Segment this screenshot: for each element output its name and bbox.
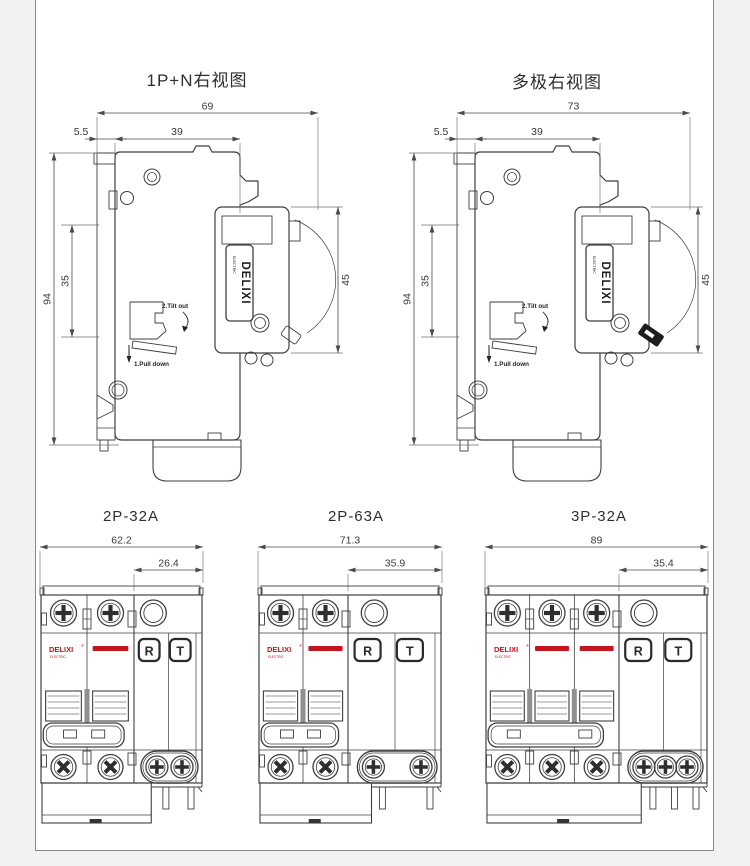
phillips-screw xyxy=(539,600,565,626)
dimension-label: 62.2 xyxy=(111,535,132,547)
terminal-oval xyxy=(141,751,198,783)
side-view-multi-title: 多极右视图 xyxy=(472,68,642,93)
brand-reg-mark: ® xyxy=(299,643,302,648)
rcd-module: DELIXIELECTRIC xyxy=(215,207,336,366)
dimension-label: 45 xyxy=(700,274,709,286)
reset-button-label: R xyxy=(634,645,643,659)
phillips-screw xyxy=(268,600,294,626)
front-view-2p63-title: 2P-63A xyxy=(271,508,441,525)
front-view-2p32-drawing: 62.226.4DELIXI®ELECTRICRT xyxy=(32,535,212,833)
test-port xyxy=(140,600,166,626)
tilt-out-annotation: 2.Tilt out xyxy=(522,303,549,310)
brand-reg-mark: ® xyxy=(81,643,84,648)
dimension-label: 35.4 xyxy=(653,558,674,570)
brand-logo-text: DELIXI xyxy=(267,645,291,654)
phillips-screw xyxy=(268,755,293,780)
bottom-terminals xyxy=(42,751,199,783)
din-clip-detail: 2.Tilt out1.Pull down xyxy=(487,302,549,368)
handle-bar xyxy=(43,723,124,747)
dimension-label: 45 xyxy=(340,274,349,286)
brand-logo-text: DELIXI xyxy=(494,645,518,654)
side-view-1pn-drawing: 2.Tilt out1.Pull downDELIXIELECTRIC695.5… xyxy=(37,92,349,494)
dimension-label: 73 xyxy=(568,101,580,113)
phillips-screw xyxy=(494,600,520,626)
terminal-oval xyxy=(628,751,703,783)
pins xyxy=(650,787,699,809)
skirt xyxy=(487,783,707,823)
front-view-3p32-title: 3P-32A xyxy=(514,508,684,525)
front-view-3p32-drawing: 8935.4DELIXI®ELECTRICRT xyxy=(477,535,717,833)
phillips-screw xyxy=(313,755,338,780)
phillips-screw xyxy=(98,600,124,626)
dimension-label: 26.4 xyxy=(158,558,179,570)
dimension-label: 35.9 xyxy=(385,558,406,570)
side-view-1pn-title: 1P+N右视图 xyxy=(112,66,282,91)
side-view-multi-drawing: 2.Tilt out1.Pull downDELIXIELECTRIC735.5… xyxy=(397,92,709,494)
brand-sublabel-text: ELECTRIC xyxy=(592,256,596,274)
dimension-label: 94 xyxy=(402,293,414,305)
brand-label-text: DELIXI xyxy=(239,261,251,304)
reset-button: R xyxy=(625,639,651,661)
dimension-label: 69 xyxy=(202,101,214,113)
test-button: T xyxy=(397,639,423,661)
phillips-screw xyxy=(540,755,565,780)
test-button-label: T xyxy=(176,645,184,659)
skirt xyxy=(260,783,441,823)
brand-sublabel-text: ELECTRIC xyxy=(50,655,66,659)
pull-down-annotation: 1.Pull down xyxy=(134,361,169,368)
dimensions: 735.539943545 xyxy=(402,101,710,446)
face: DELIXI®ELECTRICRT xyxy=(494,639,691,661)
test-port xyxy=(631,600,657,626)
phillips-screw xyxy=(98,755,123,780)
handle-bar xyxy=(488,723,603,747)
handle-bar xyxy=(261,723,338,747)
front-view-2p32-title: 2P-32A xyxy=(46,508,216,525)
reset-button-label: R xyxy=(363,645,372,659)
pins xyxy=(379,787,433,809)
brand-logo: DELIXI®ELECTRIC xyxy=(49,643,84,659)
brand-logo: DELIXI®ELECTRIC xyxy=(267,643,302,659)
bottom-housing xyxy=(153,433,241,481)
pull-down-annotation: 1.Pull down xyxy=(494,361,529,368)
brand-label-text: DELIXI xyxy=(599,261,611,304)
dimension-label: 89 xyxy=(591,535,603,547)
phillips-screw xyxy=(51,755,76,780)
brand-label: DELIXIELECTRIC xyxy=(226,245,253,321)
dimensions: 695.539943545 xyxy=(42,101,350,446)
brand-sublabel-text: ELECTRIC xyxy=(268,655,284,659)
reset-button: R xyxy=(139,639,160,661)
face: DELIXI®ELECTRICRT xyxy=(49,639,191,661)
din-rail-plate xyxy=(454,153,477,451)
bottom-terminals xyxy=(487,751,704,783)
brand-label: DELIXIELECTRIC xyxy=(586,245,613,321)
phillips-screw xyxy=(51,600,77,626)
dimensions: 8935.4 xyxy=(485,535,708,591)
phillips-screw xyxy=(313,600,339,626)
brand-logo-text: DELIXI xyxy=(49,645,73,654)
top-terminals xyxy=(260,600,388,629)
phillips-screw xyxy=(495,755,520,780)
rcd-module: DELIXIELECTRIC xyxy=(575,207,696,366)
dimension-label: 5.5 xyxy=(74,126,89,138)
brand-reg-mark: ® xyxy=(526,643,529,648)
skirt xyxy=(42,783,202,823)
tilt-out-annotation: 2.Tilt out xyxy=(162,303,189,310)
top-terminals xyxy=(487,600,657,629)
reset-button: R xyxy=(355,639,381,661)
front-view-2p63-drawing: 71.335.9DELIXI®ELECTRICRT xyxy=(250,535,451,833)
test-button-label: T xyxy=(406,645,414,659)
test-button: T xyxy=(665,639,691,661)
dimension-label: 35 xyxy=(60,275,72,287)
din-rail-plate xyxy=(94,153,117,451)
brand-sublabel-text: ELECTRIC xyxy=(495,655,511,659)
dimension-label: 35 xyxy=(420,275,432,287)
dimensions: 71.335.9 xyxy=(258,535,442,591)
phillips-screw xyxy=(584,755,609,780)
brand-logo: DELIXI®ELECTRIC xyxy=(494,643,529,659)
din-clip-detail: 2.Tilt out1.Pull down xyxy=(127,302,189,368)
dimension-label: 39 xyxy=(171,126,183,138)
dimension-label: 39 xyxy=(531,126,543,138)
dimensions: 62.226.4 xyxy=(40,535,203,591)
dimension-label: 71.3 xyxy=(340,535,361,547)
test-button-label: T xyxy=(674,645,682,659)
page: 1P+N右视图 多极右视图 2P-32A 2P-63A 3P-32A 2.Til… xyxy=(0,0,750,866)
test-button: T xyxy=(170,639,191,661)
bottom-housing xyxy=(513,433,601,481)
dimension-label: 5.5 xyxy=(434,126,449,138)
face: DELIXI®ELECTRICRT xyxy=(267,639,423,661)
test-port xyxy=(361,600,387,626)
brand-sublabel-text: ELECTRIC xyxy=(232,256,236,274)
phillips-screw xyxy=(584,600,610,626)
top-terminals xyxy=(42,600,167,629)
terminal-oval xyxy=(357,751,437,783)
dimension-label: 94 xyxy=(42,293,54,305)
pins xyxy=(163,787,194,809)
reset-button-label: R xyxy=(145,645,154,659)
